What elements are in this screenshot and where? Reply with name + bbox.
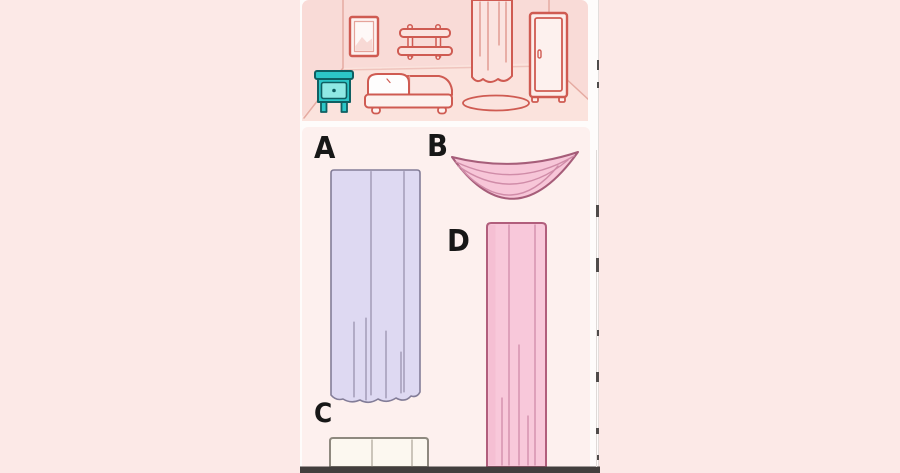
option-c-label[interactable]: C [314,400,332,427]
option-d-label[interactable]: D [447,227,470,257]
artifact-mark [597,455,599,460]
artifact-mark [596,258,599,272]
game-screenshot: A B D C [0,0,900,473]
option-a-label[interactable]: A [314,134,335,164]
option-c-panel[interactable] [330,438,428,467]
artifact-mark [596,428,599,434]
picture-frame [350,17,378,56]
room-scene-card [302,0,588,121]
video-crop-bar [300,467,600,473]
artifact-mark [596,205,599,217]
option-d-curtain[interactable] [487,223,546,467]
options-panel [300,127,600,473]
window-curtain [472,0,512,82]
artifact-mark [597,60,599,70]
artifact-mark [597,82,599,88]
artifact-mark [597,330,599,336]
wardrobe [530,13,567,102]
option-a-curtain[interactable] [331,170,420,402]
option-c-shape[interactable] [330,438,428,467]
right-edge-line [596,150,597,467]
option-b-label[interactable]: B [427,132,448,162]
rug [463,96,529,111]
option-d-shape[interactable] [487,223,546,467]
option-a-shape[interactable] [331,170,420,402]
drawer-knob [332,89,336,93]
bed [365,74,452,114]
curtain-d-shade [489,225,496,465]
artifact-mark [596,372,599,382]
